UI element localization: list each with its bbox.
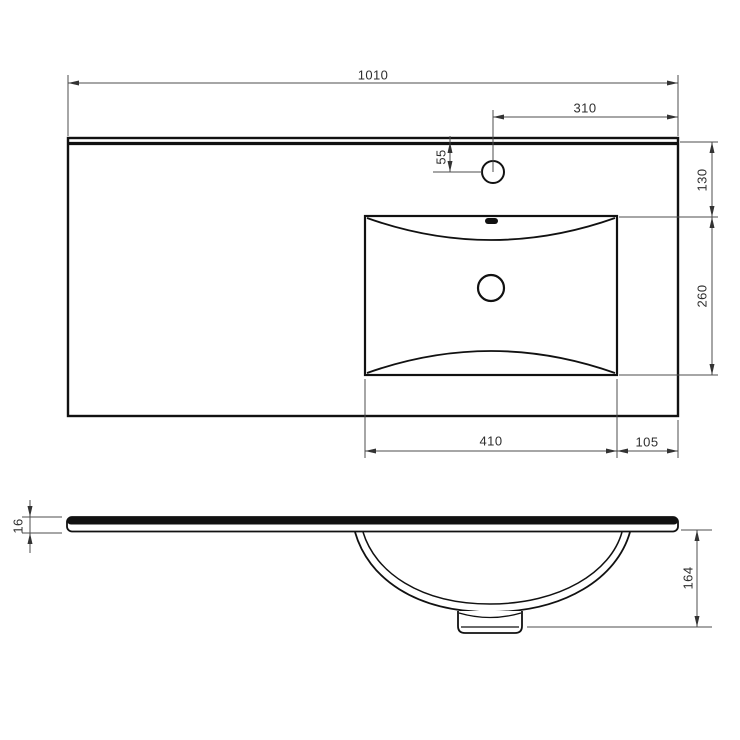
dim-back-to-basin-label: 130 [696, 169, 709, 192]
dim-slab-thickness-label: 16 [12, 518, 25, 533]
dim-bowl-depth-label: 164 [682, 567, 695, 590]
dim-back-to-basin-line [710, 142, 715, 217]
slab-top-band [67, 517, 678, 525]
bowl-outer-wall [355, 532, 630, 612]
dim-slab-thickness-line [28, 500, 33, 553]
bowl-inner-wall [363, 532, 622, 604]
overflow-slot [485, 218, 498, 224]
dim-faucet-offset-label: 55 [435, 149, 448, 164]
technical-drawing-washbasin: 1010 310 55 130 260 410 105 16 164 [0, 0, 740, 740]
drawing-linework [0, 0, 740, 740]
drain-fitting [458, 611, 522, 633]
dim-basin-width-line [365, 449, 617, 454]
dim-basin-front-back-label: 260 [696, 285, 709, 308]
dim-basin-to-right-label: 105 [636, 436, 659, 449]
drain-hole [478, 275, 504, 301]
dim-basin-front-back-line [710, 217, 715, 375]
dim-overall-width-label: 1010 [358, 69, 389, 82]
side-view [67, 517, 678, 633]
top-view [68, 138, 678, 416]
dim-basin-width-label: 410 [480, 435, 503, 448]
dim-faucet-right-label: 310 [574, 102, 597, 115]
